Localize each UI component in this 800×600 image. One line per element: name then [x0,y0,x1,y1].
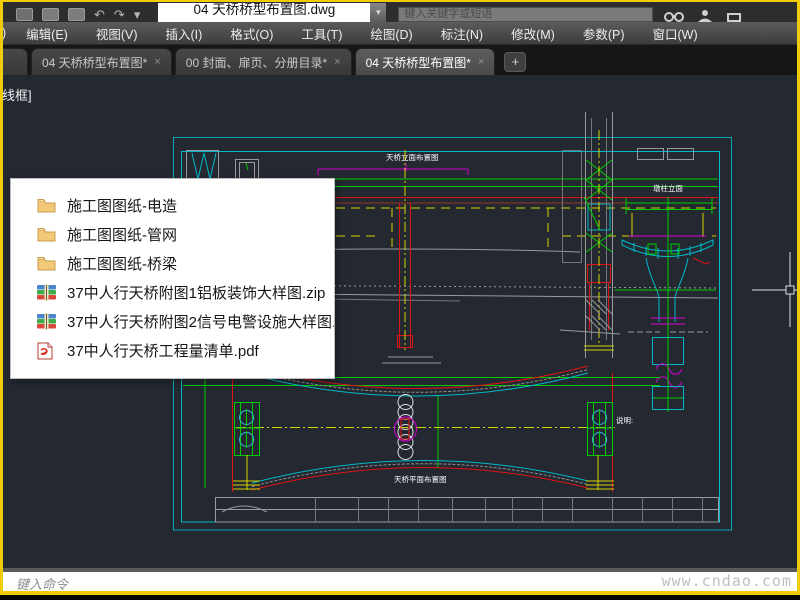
elevation-title: 天桥立面布置图 [386,152,439,162]
folder-icon [37,226,56,243]
crosshair-cursor [752,252,798,327]
drawing-number-boxes [638,149,694,160]
zip-archive-icon [37,284,56,301]
new-tab-button[interactable]: + [504,52,526,72]
folder-icon [37,255,56,272]
undo-icon[interactable]: ↶ [94,8,105,21]
menu-view[interactable]: 视图(V) [82,21,152,46]
tab-cover-index[interactable]: 00 封面、扉页、分册目录* × [175,48,352,75]
tab-drawing-active[interactable]: 04 天桥桥型布置图* × [355,48,496,75]
list-item[interactable]: 37中人行天桥工程量清单.pdf [11,336,334,365]
filename-dropdown-icon[interactable]: ▾ [370,3,386,22]
tab-partial[interactable] [0,48,28,75]
application-window: ↶ ↷ ▾ 04 天桥桥型布置图.dwg ▾ 键入关键字或短语 [0,0,800,600]
document-tab-bar: 04 天桥桥型布置图* × 00 封面、扉页、分册目录* × 04 天桥桥型布置… [0,45,800,75]
lattice-tower [560,112,620,358]
tab-close-icon[interactable]: × [334,56,340,68]
menu-bar: ) 编辑(E) 视图(V) 插入(I) 格式(O) 工具(T) 绘图(D) 标注… [0,22,800,45]
title-bar: ↶ ↷ ▾ 04 天桥桥型布置图.dwg ▾ 键入关键字或短语 [0,0,800,22]
menu-draw[interactable]: 绘图(D) [356,21,426,46]
taskbar-strip [0,595,800,600]
plan-stair-left [233,373,261,492]
pdf-file-icon [37,342,56,359]
list-item[interactable]: 施工图图纸-桥梁 [11,249,334,278]
pier-title: 墩柱立面 [653,183,683,193]
file-explorer-popup: 施工图图纸-电造 施工图图纸-管网 施工图图纸-桥梁 37中人行天桥附图1铝板装… [10,178,335,379]
list-item[interactable]: 施工图图纸-管网 [11,220,334,249]
window-border-top [0,0,800,2]
current-filename: 04 天桥桥型布置图.dwg [158,3,370,22]
list-item[interactable]: 37中人行天桥附图2信号电警设施大样图... [11,307,334,336]
print-icon[interactable] [68,8,85,21]
plan-title: 天桥平面布置图 [394,474,447,484]
command-bar: 键入命令 www.cndao.com [0,572,800,592]
folder-icon [37,197,56,214]
menu-tools[interactable]: 工具(T) [287,21,356,46]
plan-view: 天桥平面布置图 [183,366,660,492]
notes-block: 说明: [616,415,715,492]
menu-modify[interactable]: 修改(M) [497,21,569,46]
menu-parametric[interactable]: 参数(P) [569,21,639,46]
notes-label: 说明: [616,415,633,425]
stair-elevation-structures [187,151,259,182]
menu-edit[interactable]: 编辑(E) [12,21,82,46]
viewport-control-label[interactable]: 线框] [2,85,32,104]
title-block [215,497,719,522]
list-item[interactable]: 施工图图纸-电造 [11,191,334,220]
menu-insert[interactable]: 插入(I) [152,21,217,46]
exchange-icon[interactable] [727,8,749,22]
tab-drawing-1[interactable]: 04 天桥桥型布置图* × [31,48,172,75]
menu-window[interactable]: 窗口(W) [639,21,712,46]
redo-icon[interactable]: ↷ [114,8,125,21]
menu-dimension[interactable]: 标注(N) [427,21,497,46]
save-icon[interactable] [16,8,33,21]
tab-close-icon[interactable]: × [478,56,484,68]
tab-close-icon[interactable]: × [154,56,160,68]
list-item[interactable]: 37中人行天桥附图1铝板装饰大样图.zip [11,278,334,307]
window-border-left [0,0,3,595]
qat-dropdown-icon[interactable]: ▾ [134,8,141,21]
watermark-text: www.cndao.com [662,572,792,590]
zip-archive-icon [37,313,56,330]
open-icon[interactable] [42,8,59,21]
menu-format[interactable]: 格式(O) [216,21,287,46]
plan-stair-right [586,373,614,492]
